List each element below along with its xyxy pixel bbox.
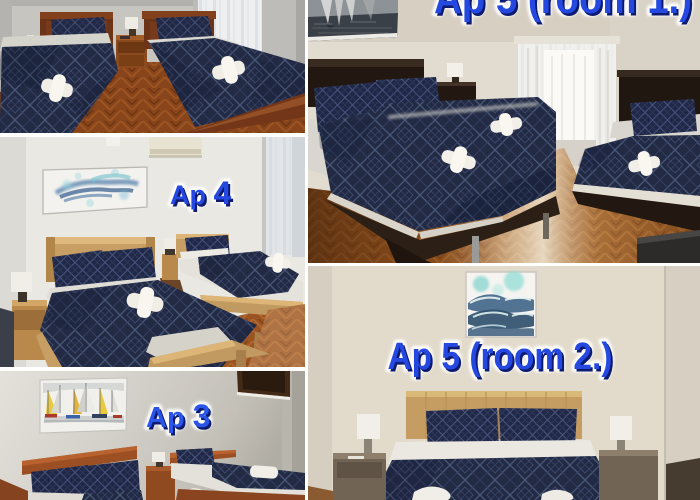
svg-text:Ap 4: Ap 4: [170, 175, 232, 211]
svg-text:Ap 5 (room 1.): Ap 5 (room 1.): [434, 0, 692, 23]
svg-text:Ap 3: Ap 3: [146, 398, 211, 434]
svg-text:Ap 5 (room 2.): Ap 5 (room 2.): [388, 336, 613, 378]
